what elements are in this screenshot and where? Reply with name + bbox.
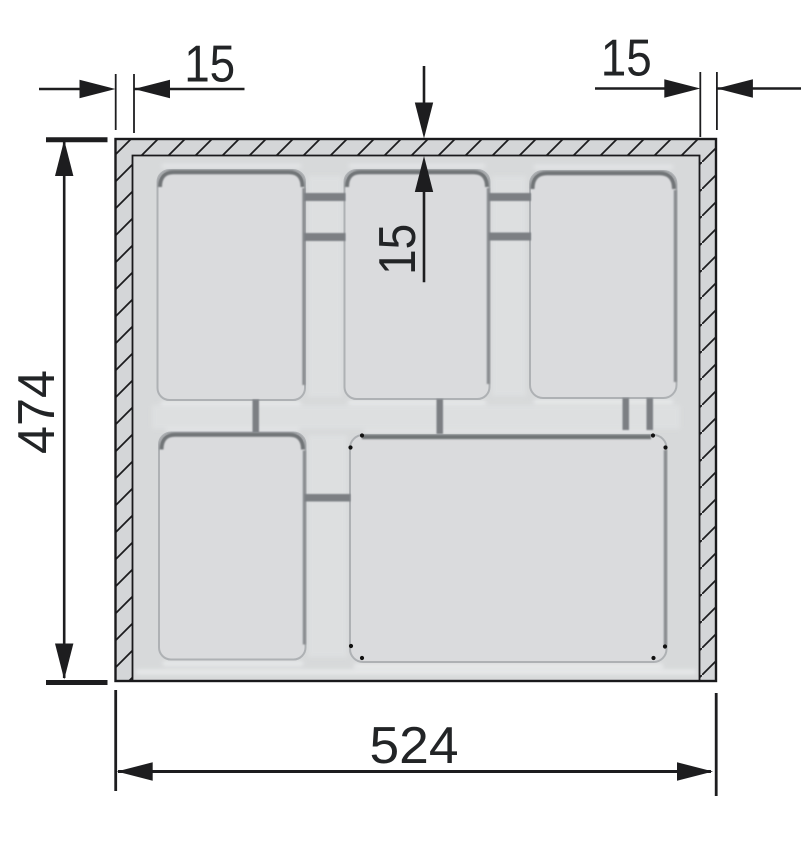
svg-text:15: 15 bbox=[369, 224, 427, 275]
svg-text:15: 15 bbox=[601, 30, 652, 88]
svg-text:524: 524 bbox=[370, 717, 459, 775]
svg-text:15: 15 bbox=[184, 36, 235, 94]
svg-text:474: 474 bbox=[8, 370, 66, 454]
